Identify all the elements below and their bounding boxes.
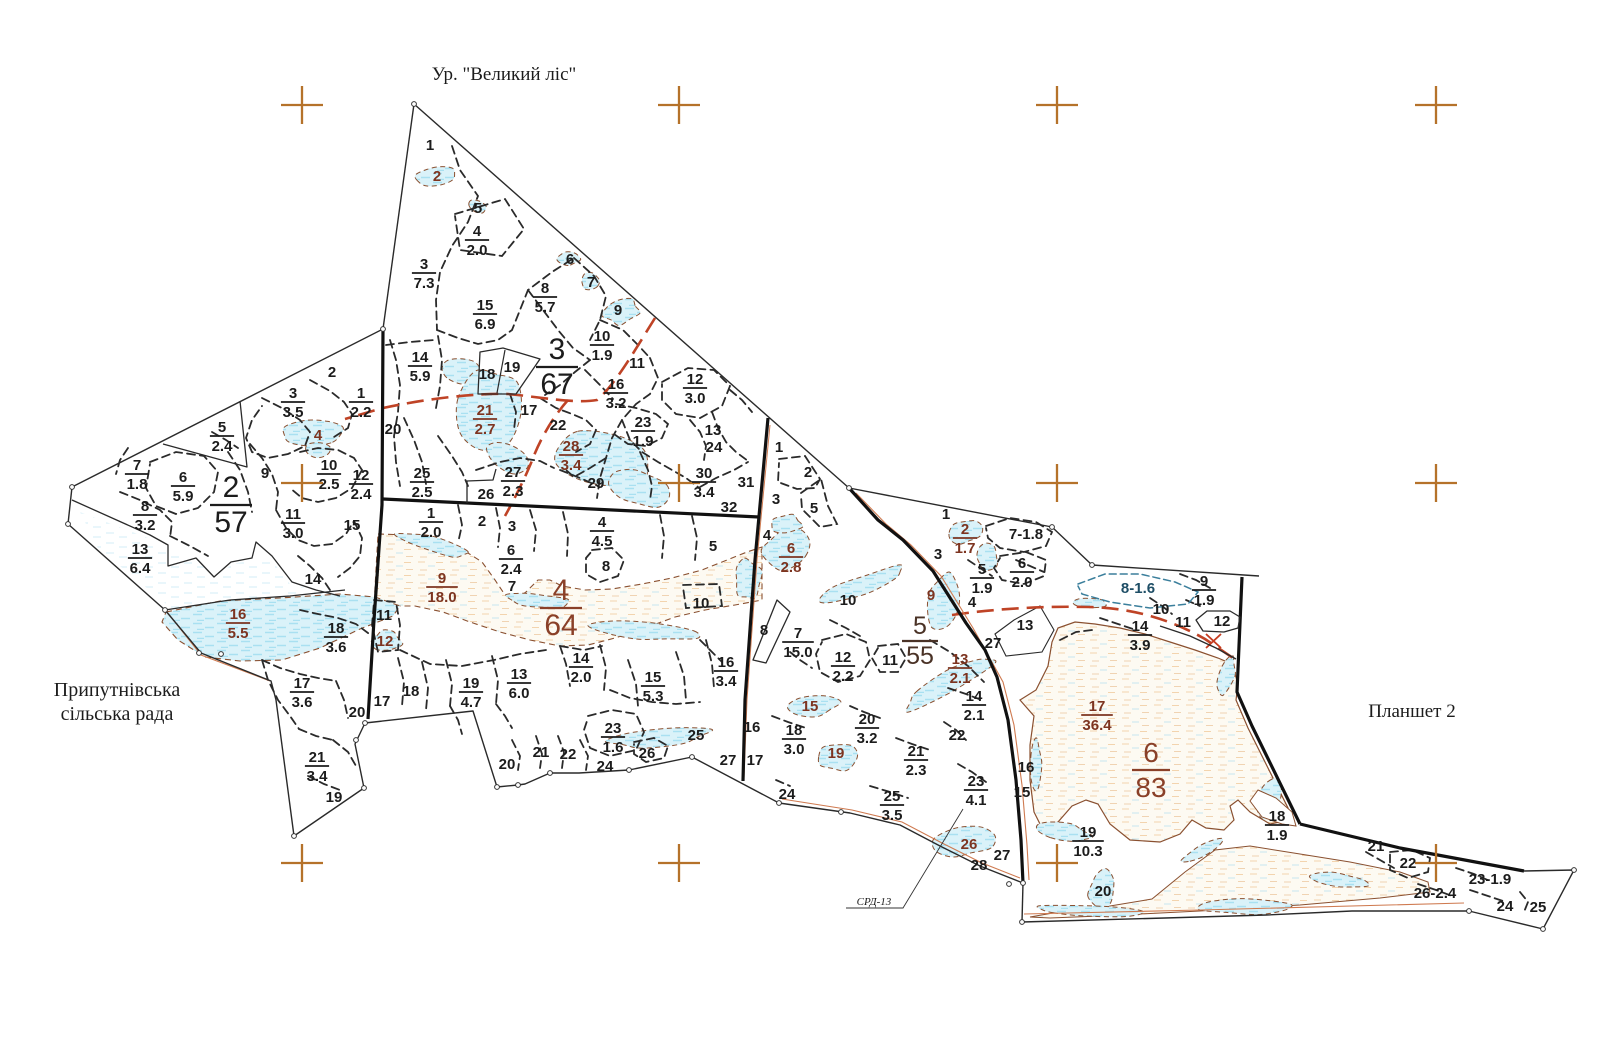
svg-text:24: 24: [706, 439, 723, 456]
svg-text:27: 27: [505, 464, 522, 481]
svg-text:27: 27: [994, 847, 1011, 864]
svg-text:2: 2: [223, 471, 240, 504]
svg-text:2.4: 2.4: [501, 561, 523, 578]
svg-text:21: 21: [309, 749, 326, 766]
svg-text:57: 57: [214, 506, 247, 539]
svg-text:1.9: 1.9: [592, 347, 613, 364]
svg-text:7-1.8: 7-1.8: [1009, 526, 1043, 543]
svg-text:10: 10: [1153, 601, 1170, 618]
svg-text:20: 20: [385, 421, 402, 438]
svg-text:16: 16: [608, 376, 625, 393]
svg-text:25: 25: [688, 727, 705, 744]
svg-text:21: 21: [533, 744, 550, 761]
svg-text:14: 14: [412, 349, 429, 366]
svg-text:3.4: 3.4: [694, 484, 716, 501]
svg-text:Припутнівська: Припутнівська: [54, 679, 181, 701]
svg-text:3.4: 3.4: [561, 457, 583, 474]
svg-text:9: 9: [438, 570, 446, 587]
svg-text:8-1.6: 8-1.6: [1121, 580, 1155, 597]
svg-text:7: 7: [794, 625, 802, 642]
svg-text:14: 14: [966, 688, 983, 705]
svg-text:2.0: 2.0: [467, 242, 488, 259]
svg-text:19: 19: [463, 675, 480, 692]
svg-text:11: 11: [285, 506, 301, 523]
svg-text:8: 8: [141, 498, 149, 515]
svg-text:7: 7: [587, 274, 595, 291]
svg-text:17: 17: [521, 402, 538, 419]
svg-text:15: 15: [344, 517, 361, 534]
svg-text:5: 5: [913, 612, 927, 640]
svg-text:28: 28: [971, 857, 988, 874]
svg-text:3.2: 3.2: [857, 730, 878, 747]
svg-text:Планшет 2: Планшет 2: [1368, 701, 1455, 722]
svg-text:1.7: 1.7: [955, 540, 976, 557]
svg-text:17: 17: [374, 693, 391, 710]
svg-text:25: 25: [414, 465, 431, 482]
svg-text:4.5: 4.5: [592, 533, 613, 550]
svg-text:9: 9: [261, 465, 269, 482]
svg-text:9: 9: [614, 302, 622, 319]
svg-text:2.3: 2.3: [906, 762, 927, 779]
svg-text:1.9: 1.9: [1267, 827, 1288, 844]
svg-text:24: 24: [1497, 898, 1514, 915]
svg-text:6: 6: [787, 540, 795, 557]
svg-text:26: 26: [639, 745, 656, 762]
svg-text:3.5: 3.5: [283, 404, 304, 421]
svg-text:17: 17: [1089, 698, 1106, 715]
svg-text:5.7: 5.7: [535, 299, 556, 316]
svg-text:1: 1: [775, 439, 783, 456]
svg-text:30: 30: [696, 465, 713, 482]
svg-text:20: 20: [859, 711, 876, 728]
svg-text:16: 16: [744, 719, 761, 736]
svg-text:22: 22: [560, 746, 577, 763]
svg-text:1: 1: [942, 506, 950, 523]
svg-text:13: 13: [1017, 617, 1034, 634]
svg-text:32: 32: [721, 499, 738, 516]
svg-text:5.3: 5.3: [643, 688, 664, 705]
svg-text:15: 15: [477, 297, 494, 314]
svg-text:6.0: 6.0: [509, 685, 530, 702]
svg-text:7.3: 7.3: [414, 275, 435, 292]
svg-text:2: 2: [961, 521, 969, 538]
svg-text:20: 20: [349, 704, 366, 721]
svg-text:2.0: 2.0: [1012, 574, 1033, 591]
svg-text:19: 19: [828, 745, 845, 762]
svg-text:15: 15: [802, 698, 819, 715]
svg-text:15.0: 15.0: [783, 644, 812, 661]
svg-text:10.3: 10.3: [1073, 843, 1102, 860]
svg-text:5.9: 5.9: [410, 368, 431, 385]
svg-text:6: 6: [566, 251, 574, 268]
svg-text:23: 23: [605, 720, 622, 737]
svg-text:6: 6: [507, 542, 515, 559]
svg-text:19: 19: [504, 359, 521, 376]
svg-text:22: 22: [1400, 855, 1417, 872]
svg-text:СРД-13: СРД-13: [857, 896, 892, 908]
svg-text:5: 5: [474, 200, 482, 217]
svg-text:23-1.9: 23-1.9: [1469, 871, 1512, 888]
svg-text:2.5: 2.5: [412, 484, 433, 501]
svg-text:18: 18: [479, 366, 496, 383]
svg-text:7: 7: [133, 457, 141, 474]
svg-text:3.4: 3.4: [307, 768, 329, 785]
svg-text:15: 15: [645, 669, 662, 686]
svg-text:3.9: 3.9: [1130, 637, 1151, 654]
svg-text:14: 14: [1132, 618, 1149, 635]
svg-text:3.6: 3.6: [326, 639, 347, 656]
svg-text:11: 11: [629, 355, 645, 372]
svg-text:18.0: 18.0: [427, 589, 456, 606]
svg-text:1: 1: [426, 137, 434, 154]
svg-text:10: 10: [321, 457, 338, 474]
svg-text:2.4: 2.4: [212, 438, 234, 455]
svg-text:5: 5: [709, 538, 717, 555]
svg-text:7: 7: [508, 578, 516, 595]
svg-text:18: 18: [328, 620, 345, 637]
svg-text:13: 13: [511, 666, 528, 683]
svg-text:21: 21: [1368, 838, 1385, 855]
svg-text:3.0: 3.0: [685, 390, 706, 407]
svg-text:21: 21: [477, 402, 494, 419]
svg-text:26: 26: [478, 486, 495, 503]
svg-text:15: 15: [1014, 784, 1031, 801]
svg-text:26: 26: [961, 836, 978, 853]
svg-text:25: 25: [1530, 899, 1547, 916]
svg-text:13: 13: [132, 541, 149, 558]
svg-text:3.0: 3.0: [784, 741, 805, 758]
svg-text:27: 27: [985, 635, 1002, 652]
svg-text:18: 18: [786, 722, 803, 739]
svg-text:11: 11: [376, 607, 392, 624]
svg-text:5: 5: [810, 500, 818, 517]
svg-text:8: 8: [541, 280, 549, 297]
svg-text:12: 12: [835, 649, 852, 666]
svg-text:13: 13: [705, 422, 722, 439]
svg-text:67: 67: [540, 368, 573, 401]
svg-text:3: 3: [420, 256, 428, 273]
svg-text:1.6: 1.6: [603, 739, 624, 756]
svg-text:4.1: 4.1: [966, 792, 987, 809]
svg-text:29: 29: [588, 475, 605, 492]
svg-text:31: 31: [738, 474, 755, 491]
svg-text:3: 3: [549, 333, 566, 366]
svg-text:8: 8: [602, 558, 610, 575]
svg-text:36.4: 36.4: [1082, 717, 1112, 734]
svg-text:2.2: 2.2: [833, 668, 854, 685]
svg-text:5.5: 5.5: [228, 625, 249, 642]
svg-text:20: 20: [1095, 883, 1112, 900]
svg-text:10: 10: [840, 592, 857, 609]
svg-text:24: 24: [779, 786, 796, 803]
svg-text:83: 83: [1135, 772, 1166, 803]
svg-text:12: 12: [687, 371, 704, 388]
svg-text:6.9: 6.9: [475, 316, 496, 333]
svg-text:25: 25: [884, 788, 901, 805]
svg-text:19: 19: [326, 789, 343, 806]
svg-text:2.1: 2.1: [950, 670, 971, 687]
svg-text:6: 6: [1143, 737, 1159, 768]
svg-text:3: 3: [508, 518, 516, 535]
svg-text:24: 24: [597, 758, 614, 775]
svg-text:Ур. "Великий ліс": Ур. "Великий ліс": [432, 64, 577, 85]
svg-text:6: 6: [1018, 555, 1026, 572]
svg-text:3.0: 3.0: [283, 525, 304, 542]
svg-text:22: 22: [550, 417, 567, 434]
svg-text:10: 10: [594, 328, 611, 345]
svg-text:2.5: 2.5: [319, 476, 340, 493]
svg-text:18: 18: [403, 683, 420, 700]
svg-text:23: 23: [635, 414, 652, 431]
svg-text:3: 3: [289, 385, 297, 402]
svg-text:16: 16: [1018, 759, 1035, 776]
svg-text:4: 4: [314, 427, 323, 444]
svg-text:26-2.4: 26-2.4: [1414, 885, 1457, 902]
svg-text:1.9: 1.9: [972, 580, 993, 597]
svg-text:3.2: 3.2: [606, 395, 627, 412]
svg-text:8: 8: [760, 622, 768, 639]
svg-text:22: 22: [949, 727, 966, 744]
svg-text:12: 12: [1214, 613, 1231, 630]
svg-text:3: 3: [934, 546, 942, 563]
svg-text:4: 4: [763, 527, 772, 544]
svg-text:5: 5: [978, 561, 986, 578]
svg-text:2.2: 2.2: [351, 404, 372, 421]
svg-text:21: 21: [908, 743, 925, 760]
svg-text:2.8: 2.8: [781, 559, 802, 576]
svg-text:2: 2: [478, 513, 486, 530]
svg-text:2.4: 2.4: [351, 486, 373, 503]
svg-text:3: 3: [772, 491, 780, 508]
svg-text:18: 18: [1269, 808, 1286, 825]
svg-text:1.8: 1.8: [127, 476, 148, 493]
svg-text:9: 9: [1200, 573, 1208, 590]
svg-text:4: 4: [473, 223, 482, 240]
svg-text:28: 28: [563, 438, 580, 455]
svg-text:55: 55: [906, 642, 934, 670]
svg-text:3.2: 3.2: [135, 517, 156, 534]
svg-text:2.1: 2.1: [964, 707, 985, 724]
svg-text:14: 14: [305, 571, 322, 588]
svg-text:3.6: 3.6: [292, 694, 313, 711]
svg-text:14: 14: [573, 650, 590, 667]
svg-text:2: 2: [328, 364, 336, 381]
svg-text:6: 6: [179, 469, 187, 486]
svg-text:64: 64: [544, 609, 577, 642]
svg-text:4: 4: [553, 574, 570, 607]
svg-text:20: 20: [499, 756, 516, 773]
svg-text:9: 9: [927, 587, 935, 604]
svg-text:12: 12: [353, 467, 370, 484]
svg-text:1: 1: [427, 505, 435, 522]
svg-text:3.4: 3.4: [716, 673, 738, 690]
svg-text:11: 11: [1175, 614, 1191, 631]
svg-text:17: 17: [747, 752, 764, 769]
svg-text:6.4: 6.4: [130, 560, 152, 577]
svg-text:16: 16: [718, 654, 735, 671]
svg-text:13: 13: [952, 651, 969, 668]
svg-text:4.7: 4.7: [461, 694, 482, 711]
svg-text:2: 2: [433, 168, 441, 185]
svg-text:2.0: 2.0: [571, 669, 592, 686]
svg-text:1: 1: [357, 385, 365, 402]
svg-text:3.5: 3.5: [882, 807, 903, 824]
svg-text:27: 27: [720, 752, 737, 769]
svg-text:12: 12: [377, 633, 394, 650]
svg-text:4: 4: [598, 514, 607, 531]
svg-text:1.9: 1.9: [633, 433, 654, 450]
svg-text:17: 17: [294, 675, 311, 692]
svg-text:16: 16: [230, 606, 247, 623]
svg-text:11: 11: [882, 652, 898, 669]
svg-text:23: 23: [968, 773, 985, 790]
svg-text:2.0: 2.0: [421, 524, 442, 541]
svg-text:2.7: 2.7: [475, 421, 496, 438]
svg-text:19: 19: [1080, 824, 1097, 841]
svg-text:5.9: 5.9: [173, 488, 194, 505]
svg-text:2.3: 2.3: [503, 483, 524, 500]
svg-text:5: 5: [218, 419, 226, 436]
svg-text:1.9: 1.9: [1194, 592, 1215, 609]
svg-text:10: 10: [693, 595, 710, 612]
svg-text:2: 2: [804, 464, 812, 481]
svg-text:сільська рада: сільська рада: [61, 703, 174, 725]
